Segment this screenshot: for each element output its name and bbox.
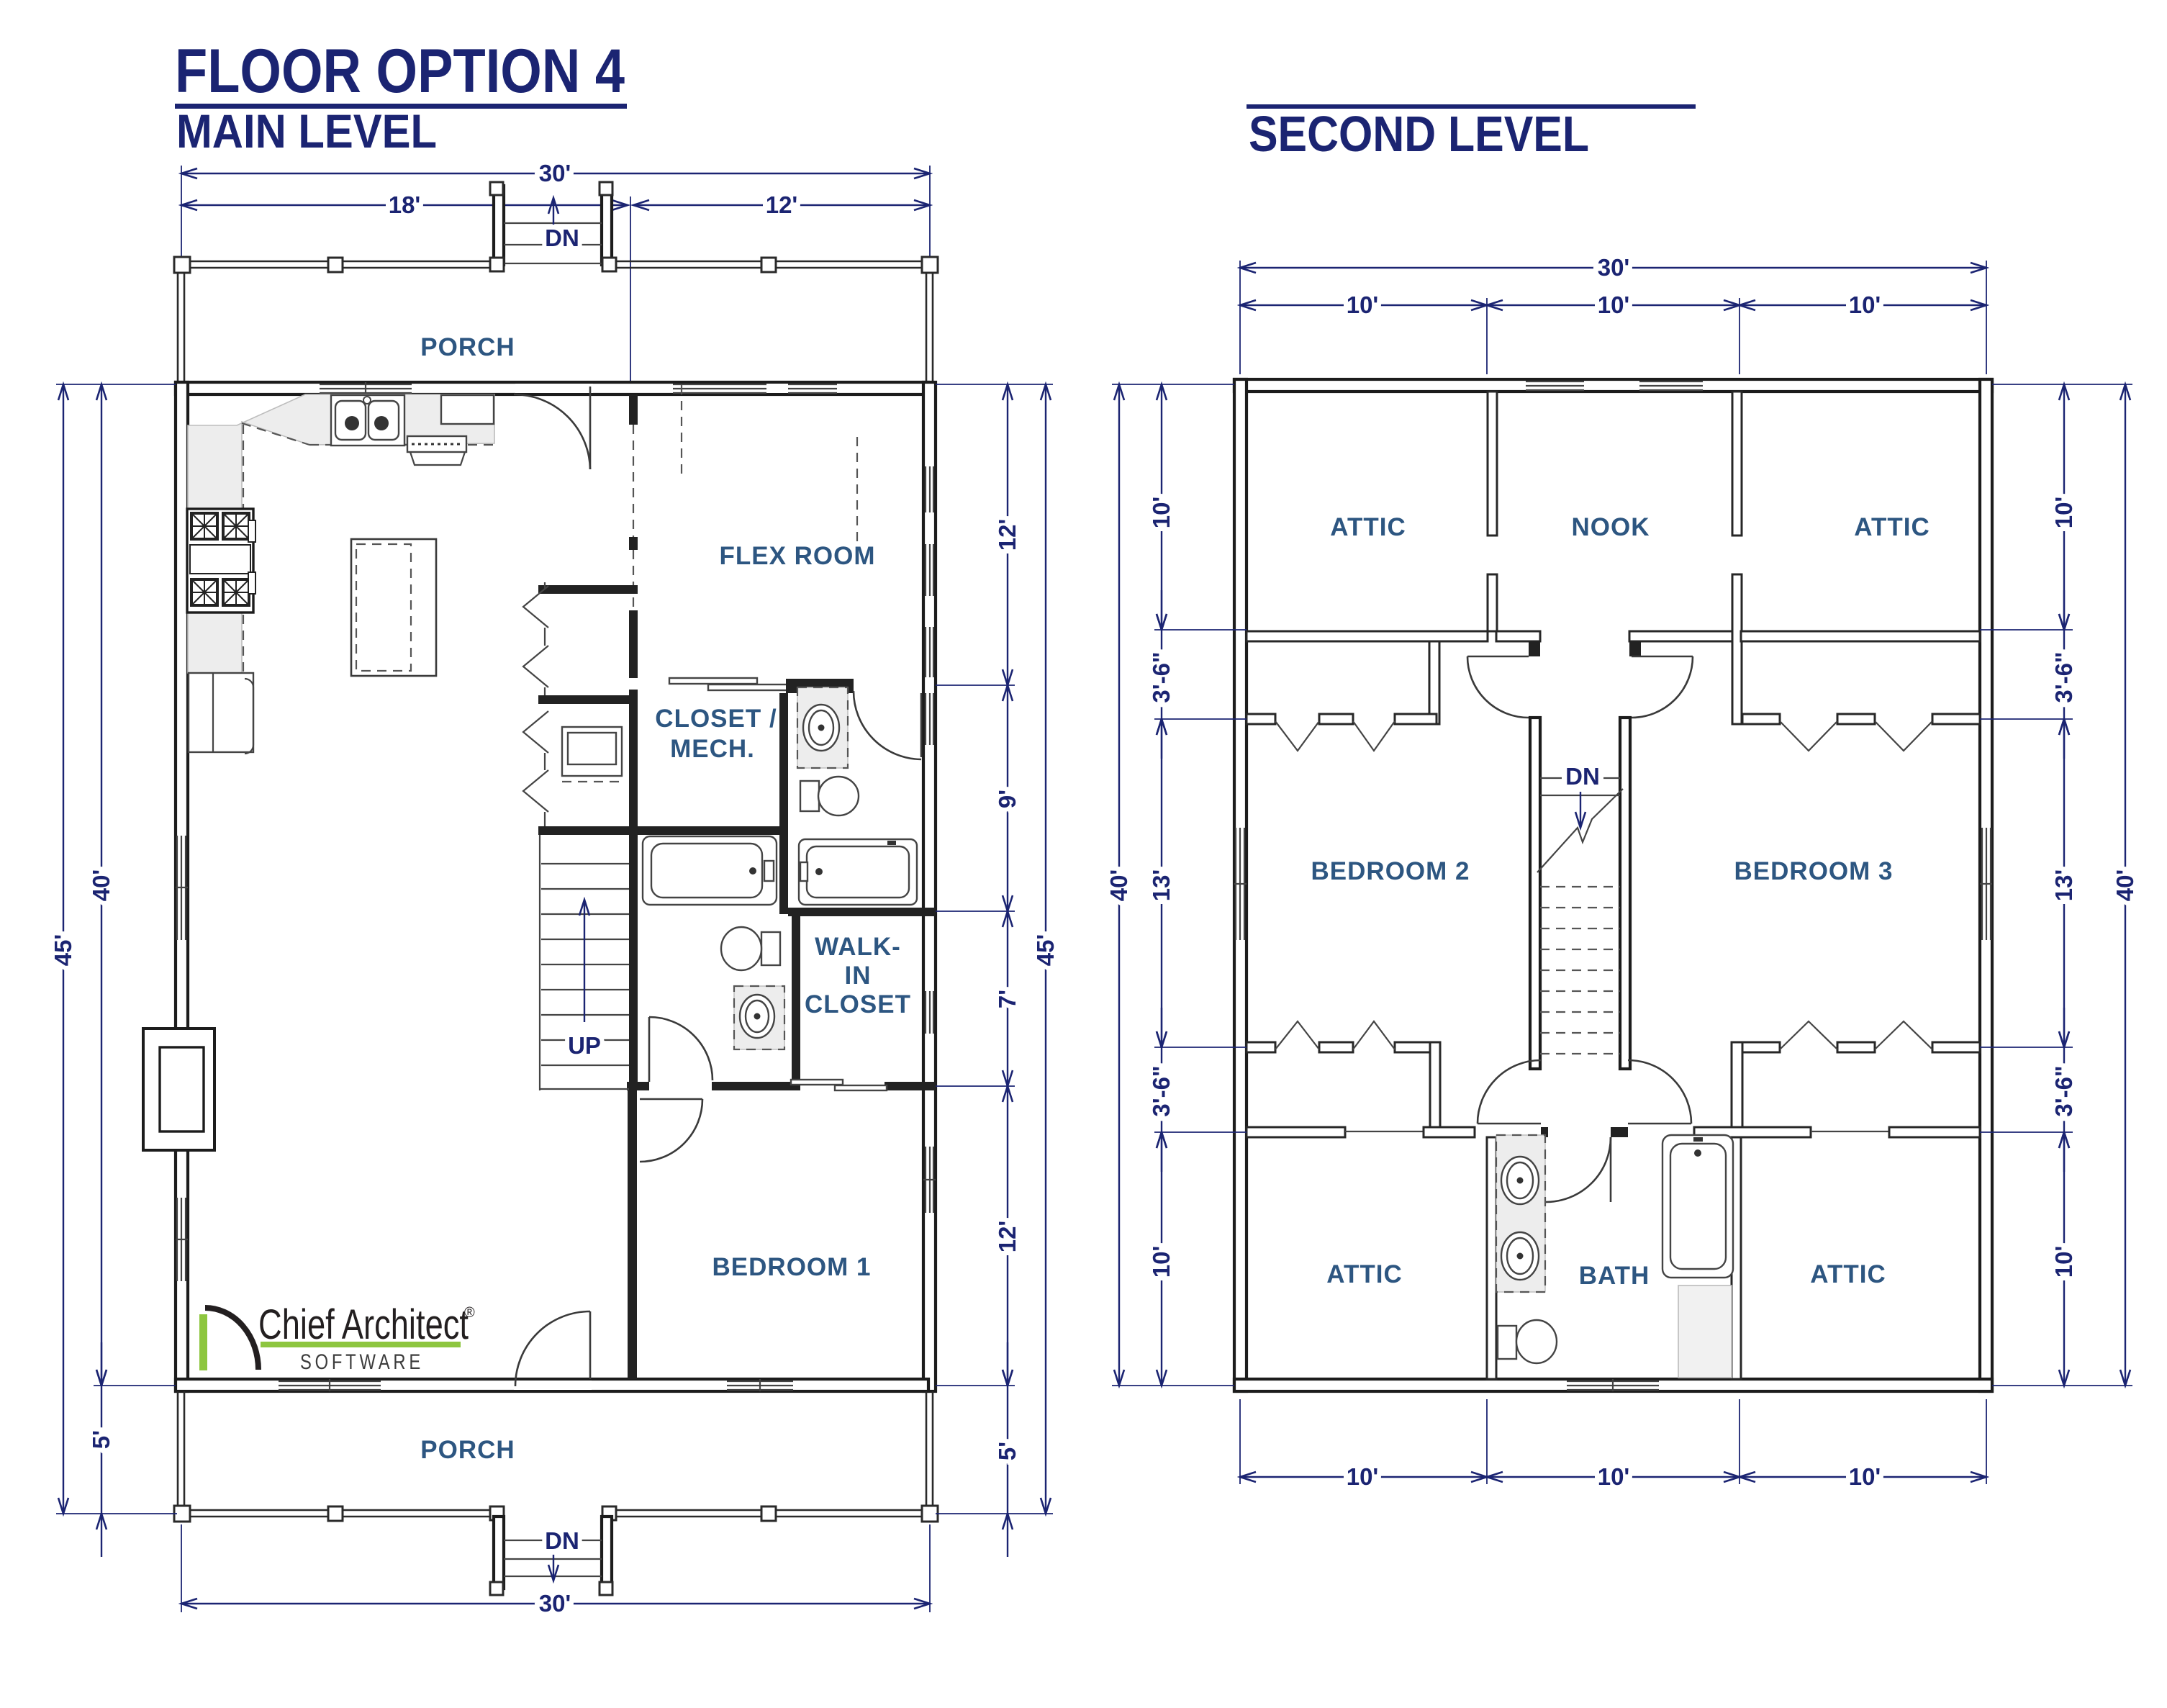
- svg-text:10': 10': [1849, 1463, 1881, 1490]
- svg-text:45': 45': [50, 934, 76, 967]
- svg-text:ATTIC: ATTIC: [1810, 1260, 1886, 1288]
- svg-text:30': 30': [1598, 254, 1630, 281]
- svg-text:®: ®: [464, 1305, 475, 1321]
- svg-text:BEDROOM 1: BEDROOM 1: [712, 1253, 872, 1281]
- svg-text:10': 10': [1347, 1463, 1379, 1490]
- svg-text:WALK-: WALK-: [815, 933, 901, 961]
- svg-text:DN: DN: [1565, 763, 1600, 790]
- svg-text:MAIN LEVEL: MAIN LEVEL: [176, 104, 437, 158]
- svg-text:12': 12': [766, 191, 798, 218]
- svg-text:FLEX ROOM: FLEX ROOM: [719, 542, 875, 570]
- svg-text:PORCH: PORCH: [420, 333, 515, 361]
- svg-text:10': 10': [1148, 497, 1175, 529]
- svg-text:SOFTWARE: SOFTWARE: [300, 1350, 424, 1374]
- svg-text:BATH: BATH: [1579, 1262, 1650, 1290]
- svg-text:NOOK: NOOK: [1572, 513, 1650, 541]
- svg-text:3'-6": 3'-6": [1148, 1065, 1175, 1116]
- svg-text:3'-6": 3'-6": [2050, 651, 2077, 702]
- svg-text:12': 12': [994, 1221, 1021, 1253]
- svg-text:IN: IN: [845, 962, 872, 990]
- svg-text:9': 9': [994, 790, 1021, 808]
- svg-text:10': 10': [1148, 1246, 1175, 1278]
- svg-text:10': 10': [1849, 292, 1881, 318]
- svg-text:10': 10': [2050, 1246, 2077, 1278]
- svg-text:18': 18': [389, 191, 421, 218]
- svg-text:UP: UP: [568, 1032, 601, 1059]
- svg-text:CLOSET /: CLOSET /: [655, 705, 777, 733]
- svg-text:MECH.: MECH.: [670, 735, 755, 763]
- svg-text:7': 7': [994, 990, 1021, 1008]
- svg-text:5': 5': [88, 1430, 114, 1449]
- svg-text:FLOOR OPTION 4: FLOOR OPTION 4: [175, 37, 625, 106]
- svg-text:13': 13': [1148, 869, 1175, 902]
- svg-text:ATTIC: ATTIC: [1326, 1260, 1402, 1288]
- svg-text:40': 40': [88, 869, 114, 902]
- svg-text:30': 30': [539, 160, 571, 186]
- svg-text:45': 45': [1032, 934, 1059, 967]
- svg-text:40': 40': [2112, 869, 2138, 902]
- svg-text:12': 12': [994, 519, 1021, 551]
- svg-text:13': 13': [2050, 869, 2077, 902]
- svg-text:40': 40': [1105, 869, 1132, 902]
- svg-text:DN: DN: [545, 1527, 579, 1554]
- svg-text:BEDROOM 3: BEDROOM 3: [1734, 857, 1894, 885]
- svg-text:3'-6": 3'-6": [1148, 651, 1175, 702]
- svg-text:10': 10': [1598, 292, 1630, 318]
- svg-text:5': 5': [994, 1442, 1021, 1460]
- svg-text:ATTIC: ATTIC: [1854, 513, 1930, 541]
- svg-text:3'-6": 3'-6": [2050, 1065, 2077, 1116]
- svg-text:SECOND LEVEL: SECOND LEVEL: [1249, 106, 1589, 162]
- svg-text:CLOSET: CLOSET: [805, 990, 911, 1018]
- svg-text:30': 30': [539, 1590, 571, 1617]
- svg-text:BEDROOM 2: BEDROOM 2: [1311, 857, 1470, 885]
- svg-text:10': 10': [2050, 497, 2077, 529]
- svg-text:PORCH: PORCH: [420, 1436, 515, 1464]
- svg-text:ATTIC: ATTIC: [1330, 513, 1406, 541]
- svg-text:Chief Architect: Chief Architect: [258, 1301, 469, 1348]
- svg-text:10': 10': [1347, 292, 1379, 318]
- svg-text:DN: DN: [545, 225, 579, 251]
- svg-text:10': 10': [1598, 1463, 1630, 1490]
